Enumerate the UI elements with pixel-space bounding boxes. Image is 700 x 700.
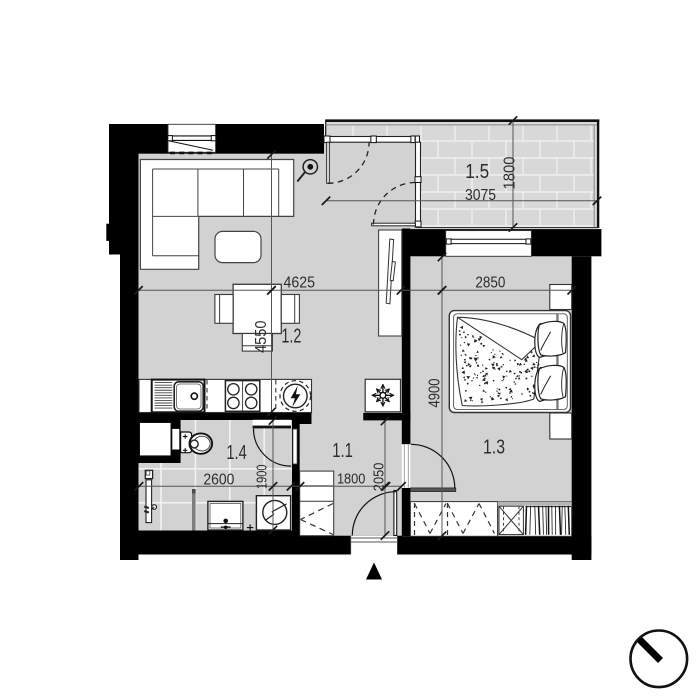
svg-text:1900: 1900	[255, 465, 271, 490]
svg-text:1.4: 1.4	[226, 442, 246, 464]
svg-text:1.1: 1.1	[332, 440, 353, 462]
svg-text:1.3: 1.3	[483, 437, 505, 459]
svg-text:1.2: 1.2	[281, 326, 301, 348]
svg-text:2050: 2050	[372, 463, 388, 492]
svg-text:1.5: 1.5	[465, 161, 489, 183]
svg-text:1800: 1800	[502, 156, 519, 189]
svg-text:4625: 4625	[284, 274, 316, 291]
svg-text:4550: 4550	[253, 320, 270, 353]
svg-text:2850: 2850	[475, 274, 505, 291]
svg-text:3075: 3075	[465, 187, 496, 204]
svg-text:2600: 2600	[203, 471, 234, 488]
svg-text:4900: 4900	[426, 378, 443, 407]
svg-text:1800: 1800	[337, 471, 366, 487]
